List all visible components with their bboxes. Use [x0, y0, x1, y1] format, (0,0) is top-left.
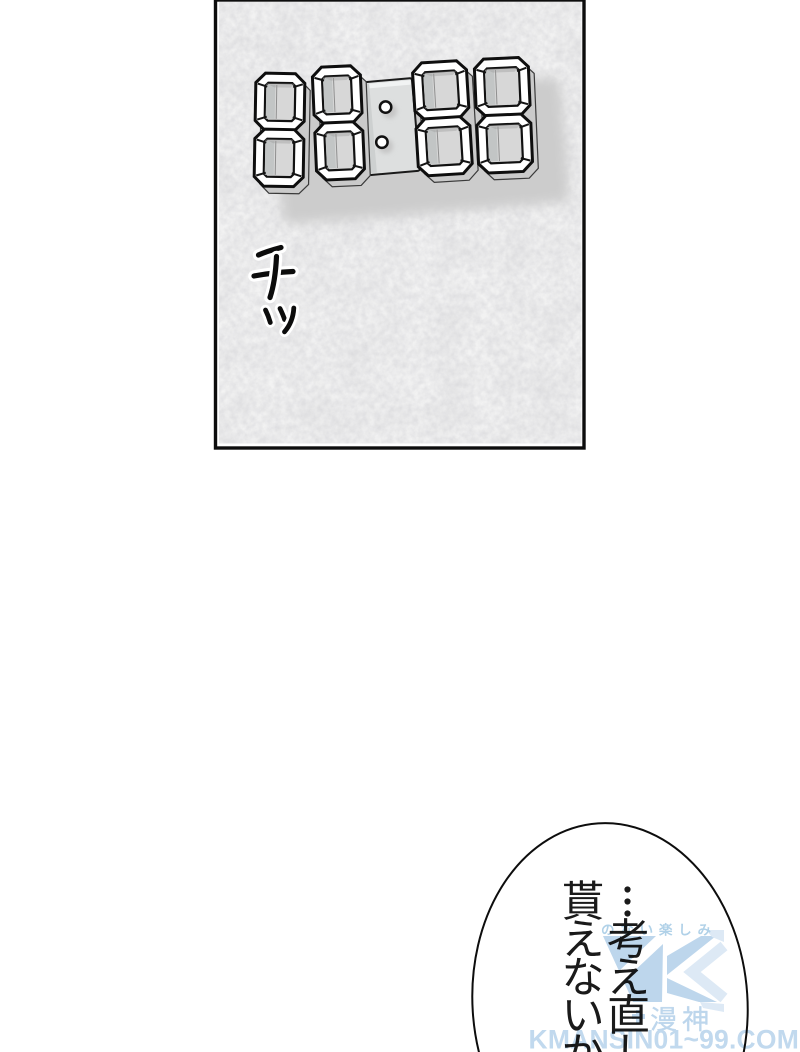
- svg-text:KMANSIN01~99.COM: KMANSIN01~99.COM: [529, 1025, 799, 1052]
